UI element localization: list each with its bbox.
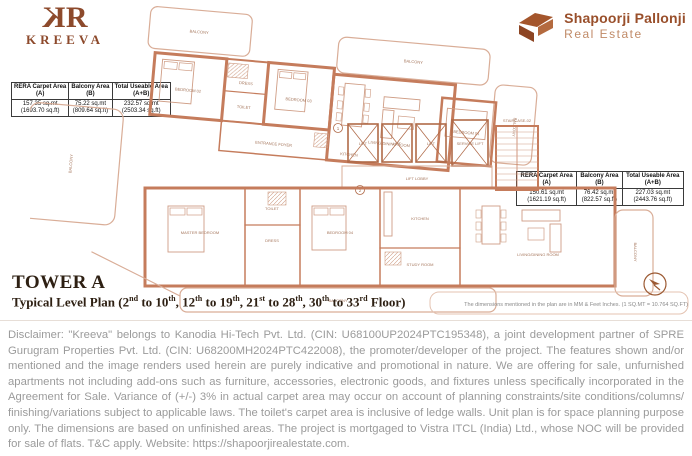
plan-label: MASTER BEDROOM (181, 230, 219, 235)
plan-label: STAIRCASE-02 (503, 118, 532, 123)
plan-label: BALCONY (67, 154, 74, 174)
tower-title: TOWER A (12, 272, 105, 294)
plan-label: BEDROOM 03 (285, 96, 312, 103)
plan-label: KITCHEN (411, 216, 429, 221)
plan-label: LIVING/DINING ROOM (517, 252, 559, 257)
plan-label: DRESS (239, 80, 253, 86)
plan-label: LIFT (393, 141, 402, 146)
plan-label: BALCONY (404, 58, 424, 65)
plan-label: TOILET (237, 104, 252, 110)
plan-label: DRESS (265, 238, 279, 243)
plan-label: LIFT (427, 141, 436, 146)
disclaimer-text: Disclaimer: "Kreeva" belongs to Kanodia … (8, 328, 684, 453)
plan-label: BALCONY (633, 242, 638, 261)
plan-subtitle: Typical Level Plan (2nd to 10th, 12th to… (12, 294, 406, 310)
plan-label: BEDROOM 04 (327, 230, 354, 235)
plan-label: LIFT (359, 141, 368, 146)
dimension-note: The dimensions mentioned in the plan are… (408, 302, 688, 308)
plan-label: ENTRANCE FOYER (255, 140, 292, 148)
north-arrow-icon (642, 271, 668, 297)
upper-unit: BALCONY BEDROOM 02 DRESS TOILET BEDROOM … (30, 0, 542, 261)
plan-label: LIFT LOBBY (406, 176, 429, 181)
divider-line (0, 320, 692, 321)
page: KR KREEVA Shapoorji Pallonji Real Estate… (0, 0, 692, 456)
plan-label: BEDROOM 02 (175, 86, 202, 93)
plan-label: STUDY ROOM (406, 262, 433, 267)
floor-plan: BALCONY BEDROOM 02 DRESS TOILET BEDROOM … (30, 0, 690, 320)
plan-label: TOILET (265, 206, 279, 211)
plan-label: LIVING/DINING ROOM (368, 140, 410, 149)
plan-label: SERVICE LIFT (457, 141, 484, 146)
plan-label: BALCONY (189, 29, 209, 36)
core: LIFT LIFT LIFT SERVICE LIFT STAIRCASE-02… (334, 118, 539, 195)
